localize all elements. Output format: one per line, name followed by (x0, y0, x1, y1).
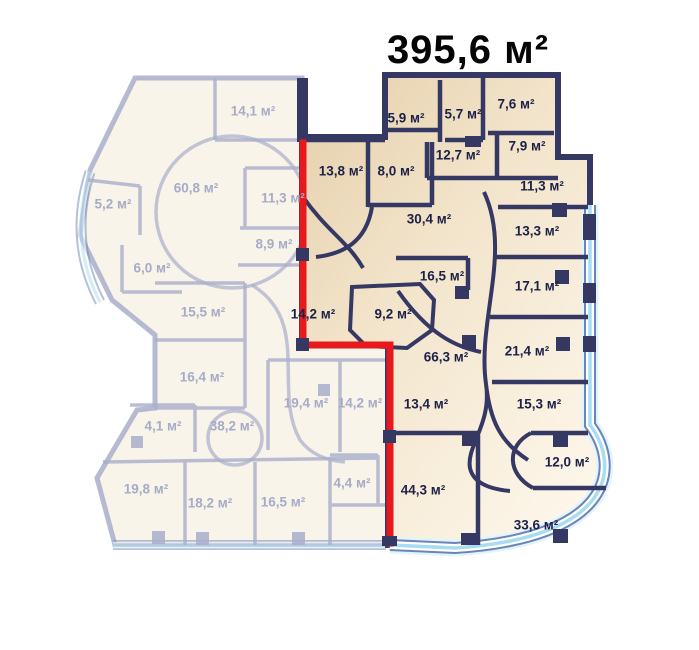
floorplan-drawing (0, 0, 699, 650)
floorplan-canvas: 395,6 м² 13,8 м²8,0 м²5,9 м²5,7 м²7,6 м²… (0, 0, 699, 650)
total-area-title: 395,6 м² (368, 28, 568, 73)
selected-wall-stub (297, 78, 308, 142)
